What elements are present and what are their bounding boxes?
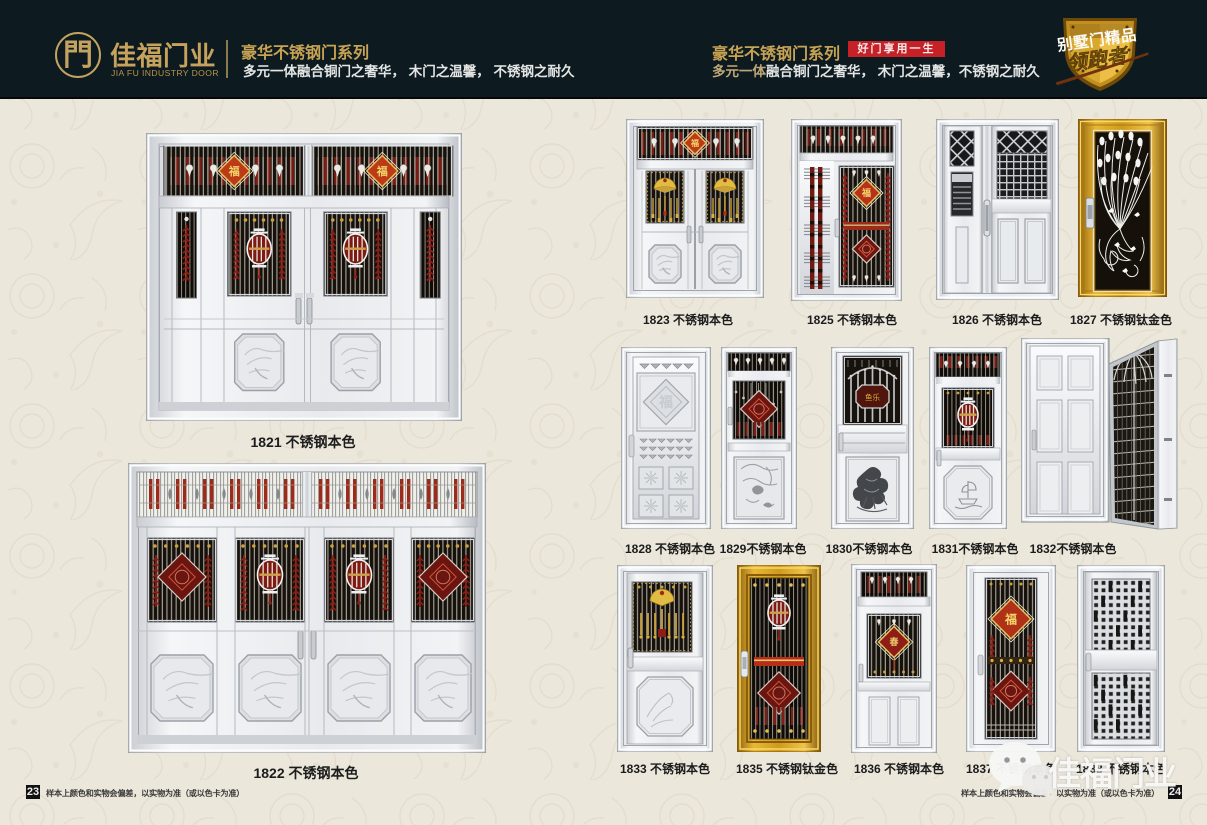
svg-text:福: 福: [376, 164, 388, 178]
svg-text:福: 福: [658, 394, 673, 410]
svg-text:福: 福: [690, 138, 699, 148]
svg-text:福: 福: [1004, 611, 1017, 626]
svg-text:福: 福: [861, 187, 871, 198]
svg-text:春: 春: [888, 636, 899, 647]
svg-text:福: 福: [228, 164, 240, 178]
svg-text:鱼乐: 鱼乐: [865, 392, 880, 402]
